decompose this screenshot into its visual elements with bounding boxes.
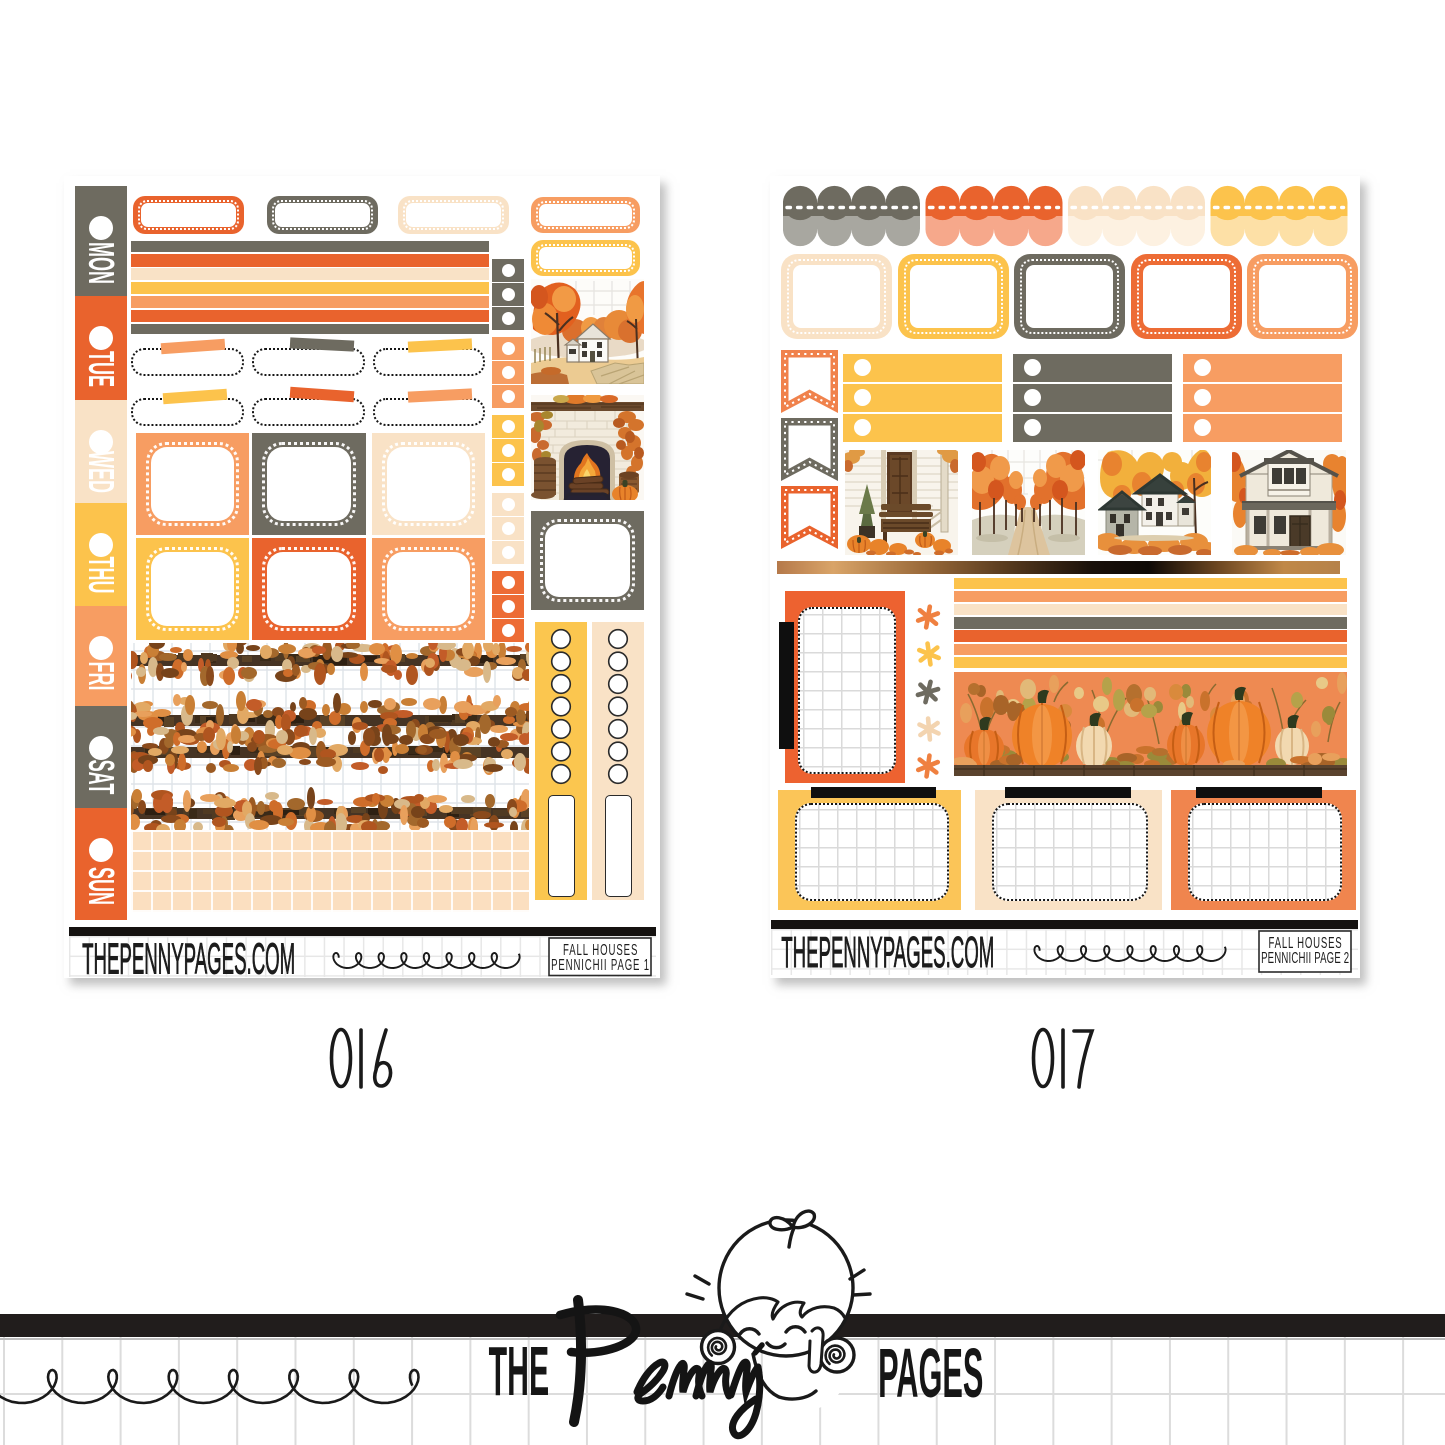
svg-text:PAGES: PAGES (878, 1334, 983, 1413)
svg-text:THE: THE (489, 1331, 549, 1410)
